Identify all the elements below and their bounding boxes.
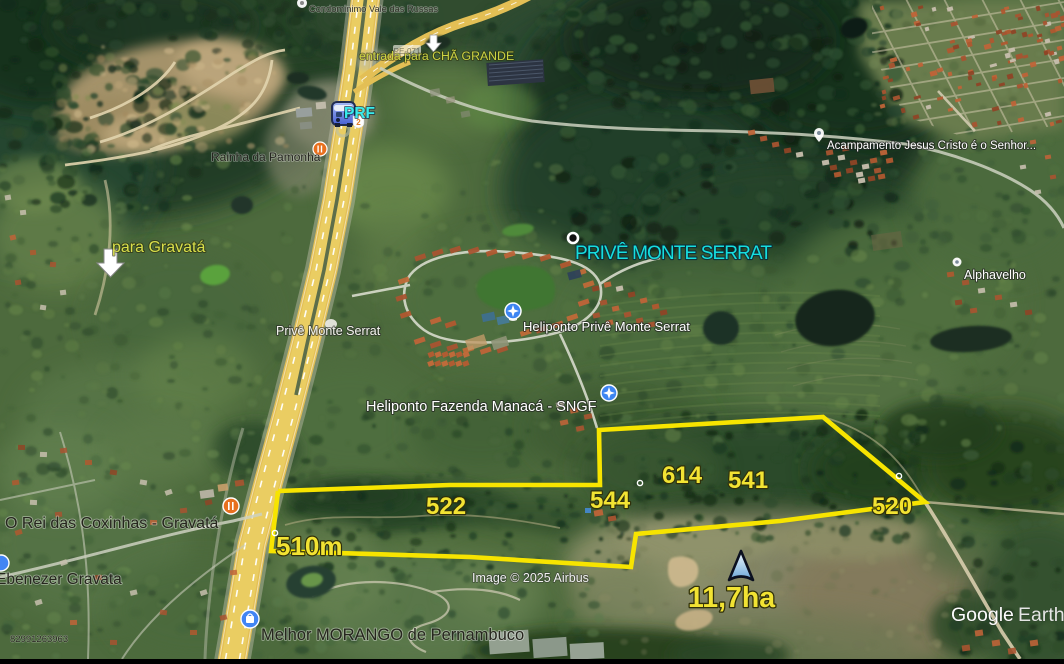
svg-text:Ebenezer Gravata: Ebenezer Gravata xyxy=(0,571,122,588)
svg-text:Condominimo Vale das Russas: Condominimo Vale das Russas xyxy=(309,4,438,14)
svg-text:Google: Google xyxy=(951,604,1014,626)
svg-text:Melhor MORANGO de Pernambuco: Melhor MORANGO de Pernambuco xyxy=(261,626,524,644)
svg-text:522: 522 xyxy=(426,493,466,520)
svg-text:PRF: PRF xyxy=(344,105,375,122)
svg-text:Rainha da Pamonha: Rainha da Pamonha xyxy=(211,150,321,164)
svg-text:544: 544 xyxy=(590,487,631,514)
svg-text:Acampamento Jesus Cristo é o S: Acampamento Jesus Cristo é o Senhor... xyxy=(827,140,1036,152)
svg-text:82991263963: 82991263963 xyxy=(10,634,68,645)
svg-text:para Gravatá: para Gravatá xyxy=(112,239,205,256)
svg-text:Heliponto Privê Monte Serrat: Heliponto Privê Monte Serrat xyxy=(523,319,690,334)
svg-text:Privê Monte Serrat: Privê Monte Serrat xyxy=(276,324,381,338)
svg-text:Image © 2025 Airbus: Image © 2025 Airbus xyxy=(472,571,589,585)
svg-text:Earth: Earth xyxy=(1018,604,1064,626)
svg-text:O Rei das Coxinhas - Gravatá: O Rei das Coxinhas - Gravatá xyxy=(5,515,219,532)
svg-text:Alphavelho: Alphavelho xyxy=(964,268,1026,282)
svg-text:614: 614 xyxy=(662,462,703,489)
svg-text:entrada para CHÃ GRANDE: entrada para CHÃ GRANDE xyxy=(359,49,514,63)
svg-text:11,7ha: 11,7ha xyxy=(688,582,776,614)
svg-text:541: 541 xyxy=(728,467,768,494)
svg-text:PRIVÊ MONTE SERRAT: PRIVÊ MONTE SERRAT xyxy=(575,242,772,264)
svg-text:510m: 510m xyxy=(276,531,343,561)
svg-text:Heliponto Fazenda Manacá - SNG: Heliponto Fazenda Manacá - SNGF xyxy=(366,399,597,415)
svg-text:520: 520 xyxy=(872,493,912,520)
